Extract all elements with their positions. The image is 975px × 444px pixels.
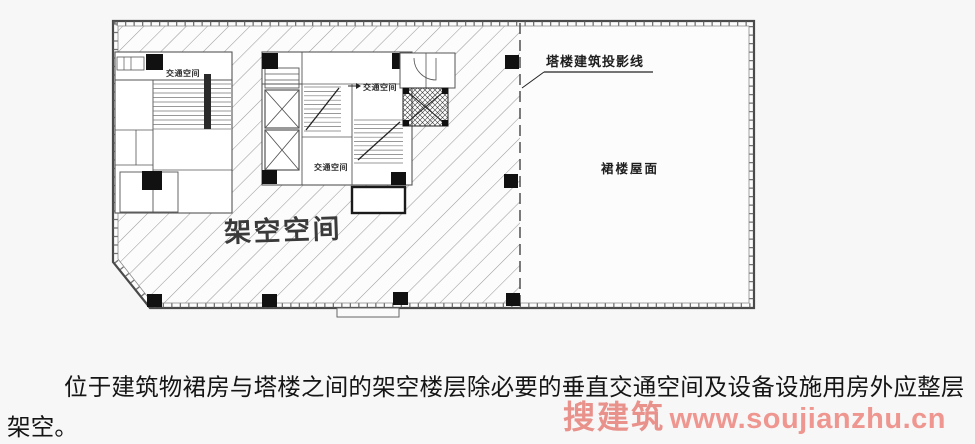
- svg-text:交通空间: 交通空间: [363, 82, 397, 92]
- traffic-space-label-mid-lower: 交通空间: [314, 162, 348, 172]
- caption-line-1: 位于建筑物裙房与塔楼之间的架空楼层除必要的垂直交通空间及设备设施用房外应整层: [64, 368, 965, 402]
- stair-rail: [204, 74, 211, 129]
- traffic-space-label-left: 交通空间: [166, 68, 200, 78]
- entrance-mark: [337, 308, 399, 317]
- svg-text:塔楼建筑投影线: 塔楼建筑投影线: [546, 54, 644, 69]
- watermark-brand: 搜建筑: [563, 399, 665, 435]
- floor-plan-diagram: 交通空间 交通空间 交通空间 架空空间 塔楼建筑投影线 裙楼屋面: [0, 0, 975, 360]
- column: [262, 170, 277, 184]
- shaft-crosshatch-box: [403, 88, 448, 126]
- watermark-url: www.soujianzhu.cn: [669, 403, 946, 435]
- stilt-space-label: 架空空间: [224, 213, 343, 248]
- document-page: 交通空间 交通空间 交通空间 架空空间 塔楼建筑投影线 裙楼屋面 搜建筑 www…: [0, 0, 975, 444]
- caption-line-2: 架空。: [7, 408, 78, 442]
- podium-roof-label: 裙楼屋面: [600, 161, 659, 176]
- right-attachment: [400, 53, 455, 126]
- protruding-room: [352, 187, 405, 213]
- column: [142, 171, 162, 190]
- column: [146, 54, 163, 70]
- column: [391, 172, 406, 185]
- column: [262, 53, 278, 69]
